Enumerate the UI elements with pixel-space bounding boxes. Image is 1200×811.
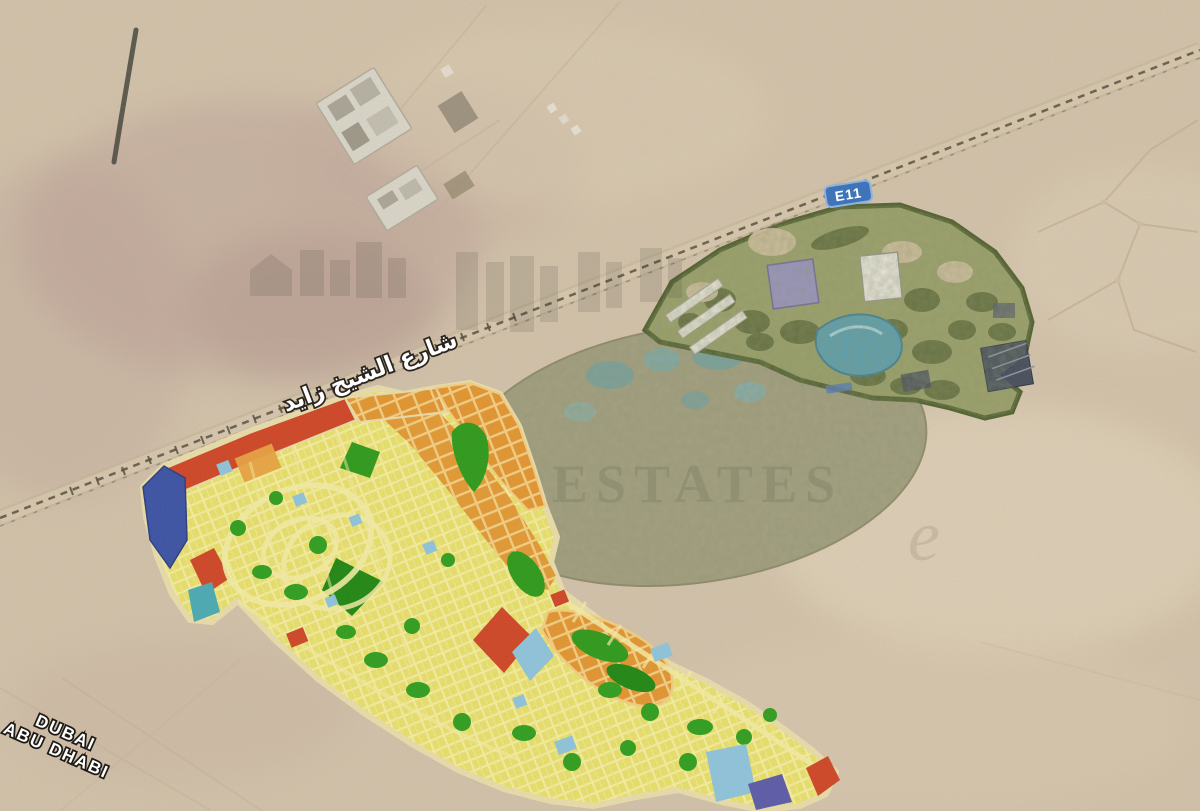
watermark-flourish-e: e (908, 496, 940, 576)
satellite-grain (0, 0, 1200, 811)
watermark-brand-text: ESTATES (552, 454, 843, 514)
satellite-masterplan-map[interactable]: ESTATES e شارع الشيخ زايد E11 DUBAI ABU … (0, 0, 1200, 811)
